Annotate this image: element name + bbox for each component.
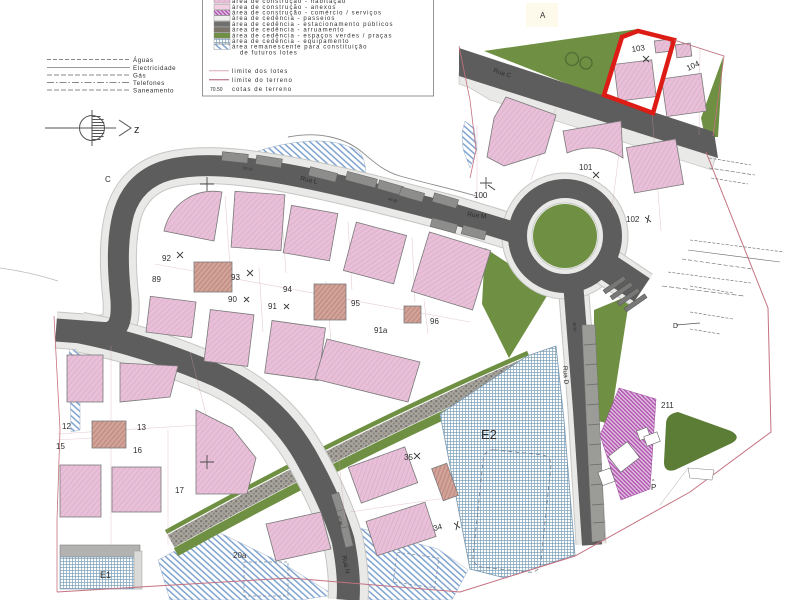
svg-text:de futuros lotes: de futuros lotes (240, 50, 298, 56)
svg-text:90: 90 (228, 295, 237, 304)
svg-text:13: 13 (137, 423, 146, 432)
svg-text:91a: 91a (374, 326, 388, 335)
svg-text:D: D (673, 323, 678, 330)
svg-text:Saneamento: Saneamento (133, 88, 174, 95)
svg-text:A: A (540, 11, 546, 20)
svg-text:17: 17 (175, 486, 184, 495)
svg-text:Electricidade: Electricidade (133, 65, 176, 72)
svg-text:20a: 20a (233, 551, 247, 560)
svg-text:Águas: Águas (133, 57, 154, 64)
svg-text:limite dos lotes: limite dos lotes (232, 69, 288, 75)
svg-text:C: C (105, 175, 111, 184)
svg-text:102: 102 (626, 215, 640, 224)
svg-text:15: 15 (56, 442, 65, 451)
svg-text:35: 35 (404, 453, 413, 462)
svg-text:Telefones: Telefones (133, 80, 165, 87)
svg-text:E2: E2 (481, 427, 497, 442)
svg-text:16: 16 (133, 446, 142, 455)
svg-text:100: 100 (474, 191, 488, 200)
svg-text:Rua D: Rua D (561, 366, 569, 385)
svg-text:103: 103 (631, 43, 646, 54)
svg-text:96: 96 (430, 317, 439, 326)
svg-text:95: 95 (351, 299, 360, 308)
svg-text:cotas de terreno: cotas de terreno (232, 87, 292, 93)
svg-text:12: 12 (62, 422, 71, 431)
svg-text:z: z (134, 124, 140, 136)
svg-text:E1: E1 (100, 570, 111, 580)
svg-text:limite do terreno: limite do terreno (232, 78, 293, 84)
svg-text:48.60: 48.60 (572, 322, 577, 332)
svg-text:92: 92 (162, 254, 171, 263)
svg-text:Gás: Gás (133, 73, 146, 80)
svg-text:70.50: 70.50 (210, 87, 223, 93)
svg-text:94: 94 (283, 285, 292, 294)
svg-text:91: 91 (268, 302, 277, 311)
svg-text:211: 211 (661, 401, 674, 410)
svg-text:93: 93 (231, 273, 240, 282)
svg-text:89: 89 (152, 275, 161, 284)
svg-text:101: 101 (579, 163, 593, 172)
